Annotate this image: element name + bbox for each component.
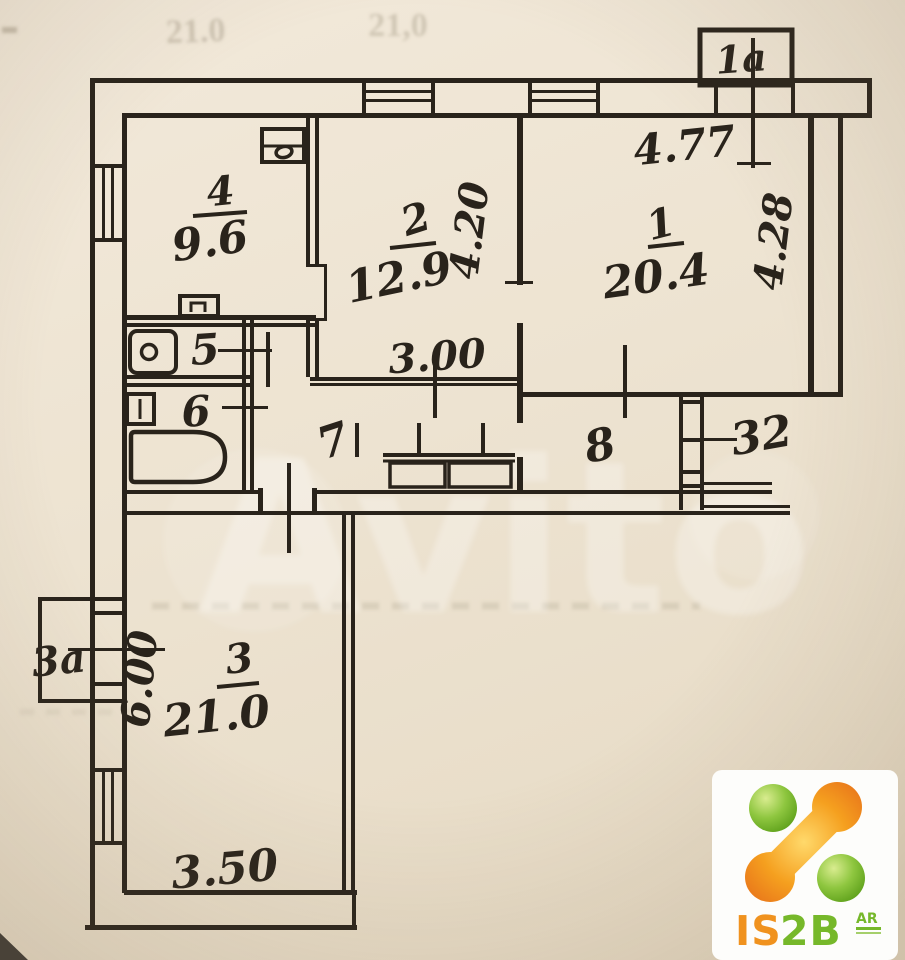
logo-badge-ar: AR xyxy=(856,911,878,927)
is2b-logo: IS 2B AR xyxy=(712,770,898,960)
logo-orange-ball-top xyxy=(812,782,862,832)
logo-orange-ball-bottom xyxy=(745,852,795,902)
logo-badge-underline xyxy=(856,927,881,930)
logo-badge-underline-2 xyxy=(856,932,881,934)
floorplan-photo: 21.0 21,0 Avito xyxy=(0,0,905,960)
logo-text-2b: 2B xyxy=(780,907,842,955)
logo-green-ball-bottom xyxy=(817,854,865,902)
logo-text-is: IS xyxy=(735,907,782,955)
logo-green-ball-top xyxy=(749,784,797,832)
